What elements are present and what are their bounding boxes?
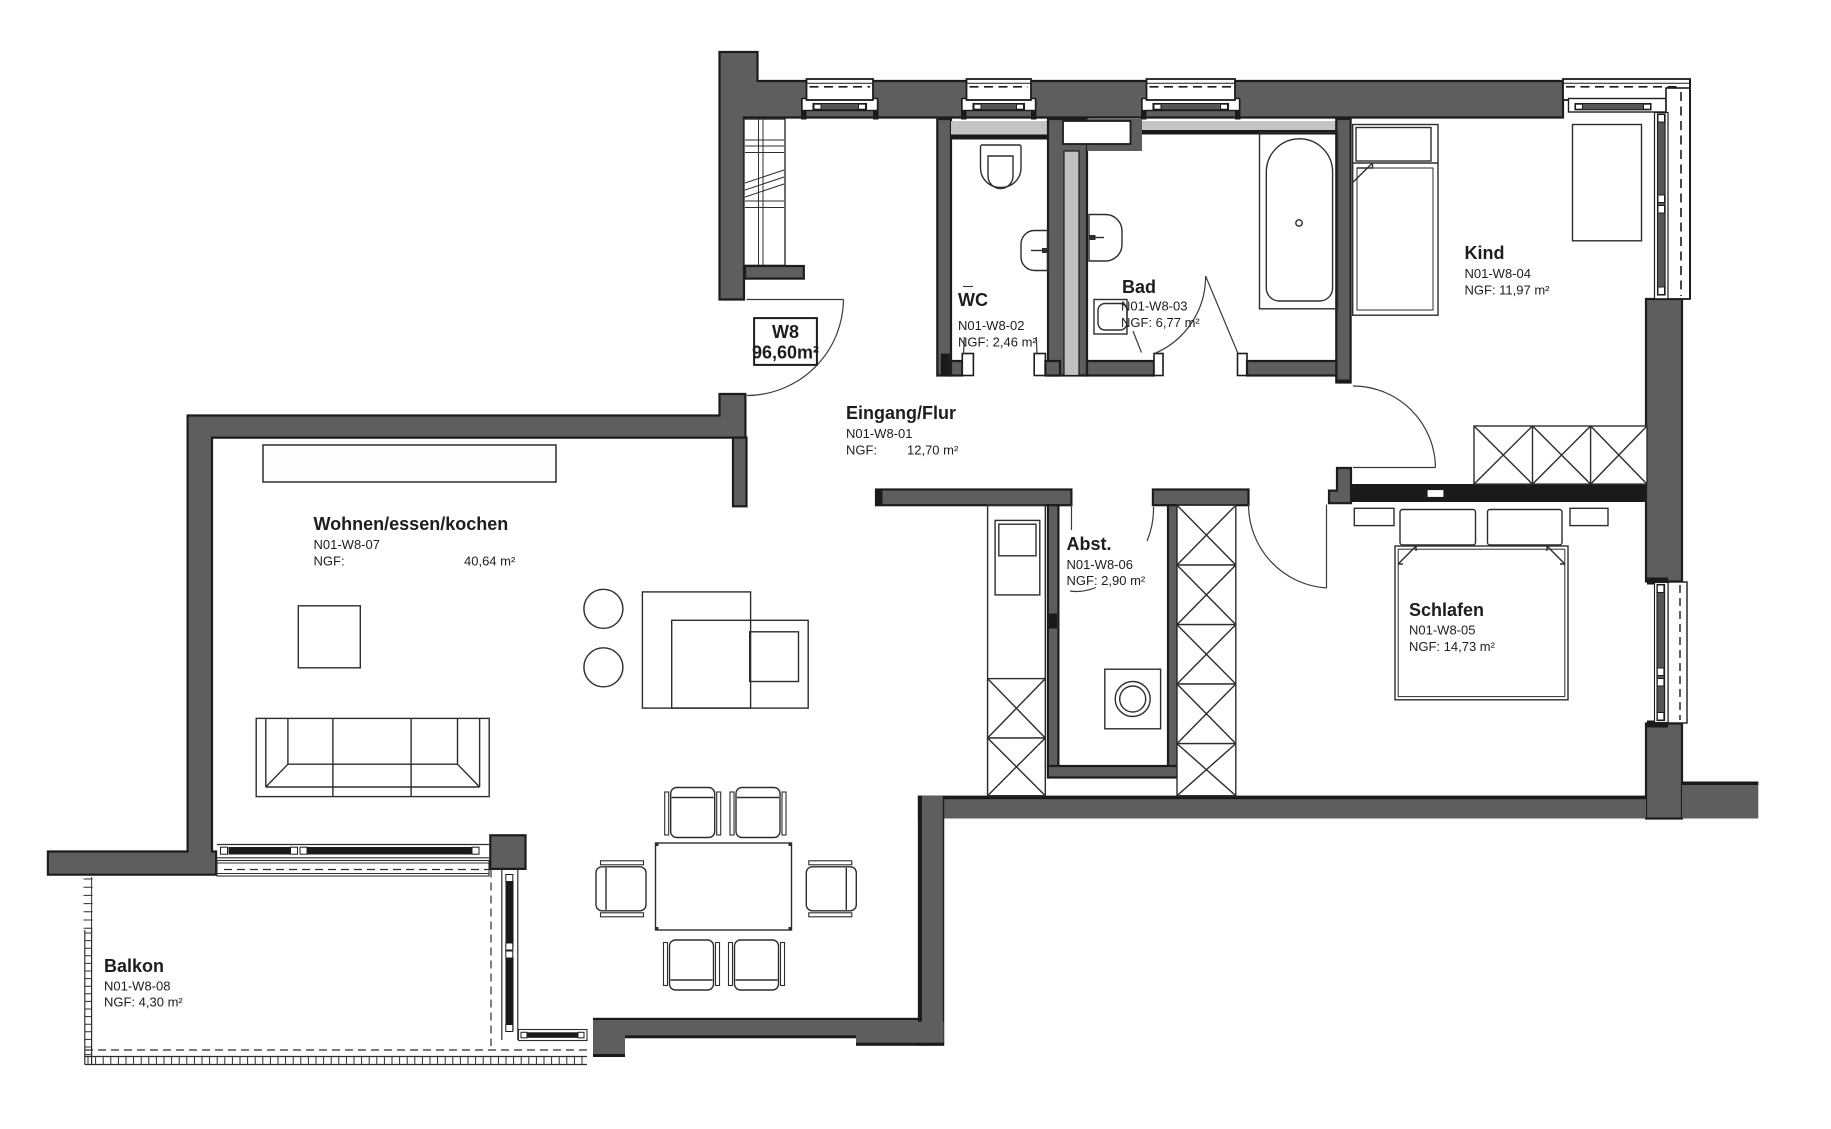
- svg-text:96,60m²: 96,60m²: [752, 343, 819, 363]
- svg-text:NGF: 11,97 m²: NGF: 11,97 m²: [1465, 283, 1551, 298]
- svg-text:N01-W8-08: N01-W8-08: [104, 979, 170, 994]
- svg-text:N01-W8-06: N01-W8-06: [1067, 557, 1133, 572]
- svg-text:12,70 m²: 12,70 m²: [907, 443, 959, 458]
- svg-text:N01-W8-07: N01-W8-07: [314, 537, 380, 552]
- svg-text:NGF: 4,30 m²: NGF: 4,30 m²: [104, 995, 183, 1010]
- svg-text:N01-W8-04: N01-W8-04: [1465, 266, 1531, 281]
- svg-text:Abst.: Abst.: [1067, 534, 1112, 554]
- svg-text:Balkon: Balkon: [104, 956, 164, 976]
- svg-text:NGF: 6,77 m²: NGF: 6,77 m²: [1121, 315, 1200, 330]
- svg-text:NGF: 2,90 m²: NGF: 2,90 m²: [1067, 573, 1146, 588]
- svg-text:Kind: Kind: [1465, 243, 1505, 263]
- svg-text:Eingang/Flur: Eingang/Flur: [846, 403, 956, 423]
- svg-text:N01-W8-01: N01-W8-01: [846, 426, 912, 441]
- svg-text:NGF:: NGF:: [846, 443, 877, 458]
- svg-text:N01-W8-05: N01-W8-05: [1409, 623, 1475, 638]
- svg-text:40,64 m²: 40,64 m²: [464, 554, 516, 569]
- svg-text:W8: W8: [772, 322, 799, 342]
- svg-text:WC: WC: [958, 290, 988, 310]
- svg-text:Wohnen/essen/kochen: Wohnen/essen/kochen: [314, 514, 509, 534]
- svg-text:Bad: Bad: [1122, 277, 1156, 297]
- svg-text:Schlafen: Schlafen: [1409, 600, 1484, 620]
- svg-text:N01-W8-02: N01-W8-02: [958, 318, 1024, 333]
- svg-text:NGF: 2,46 m²: NGF: 2,46 m²: [958, 335, 1037, 350]
- svg-text:NGF:: NGF:: [314, 554, 345, 569]
- svg-text:NGF: 14,73 m²: NGF: 14,73 m²: [1409, 639, 1496, 654]
- svg-text:N01-W8-03: N01-W8-03: [1121, 299, 1187, 314]
